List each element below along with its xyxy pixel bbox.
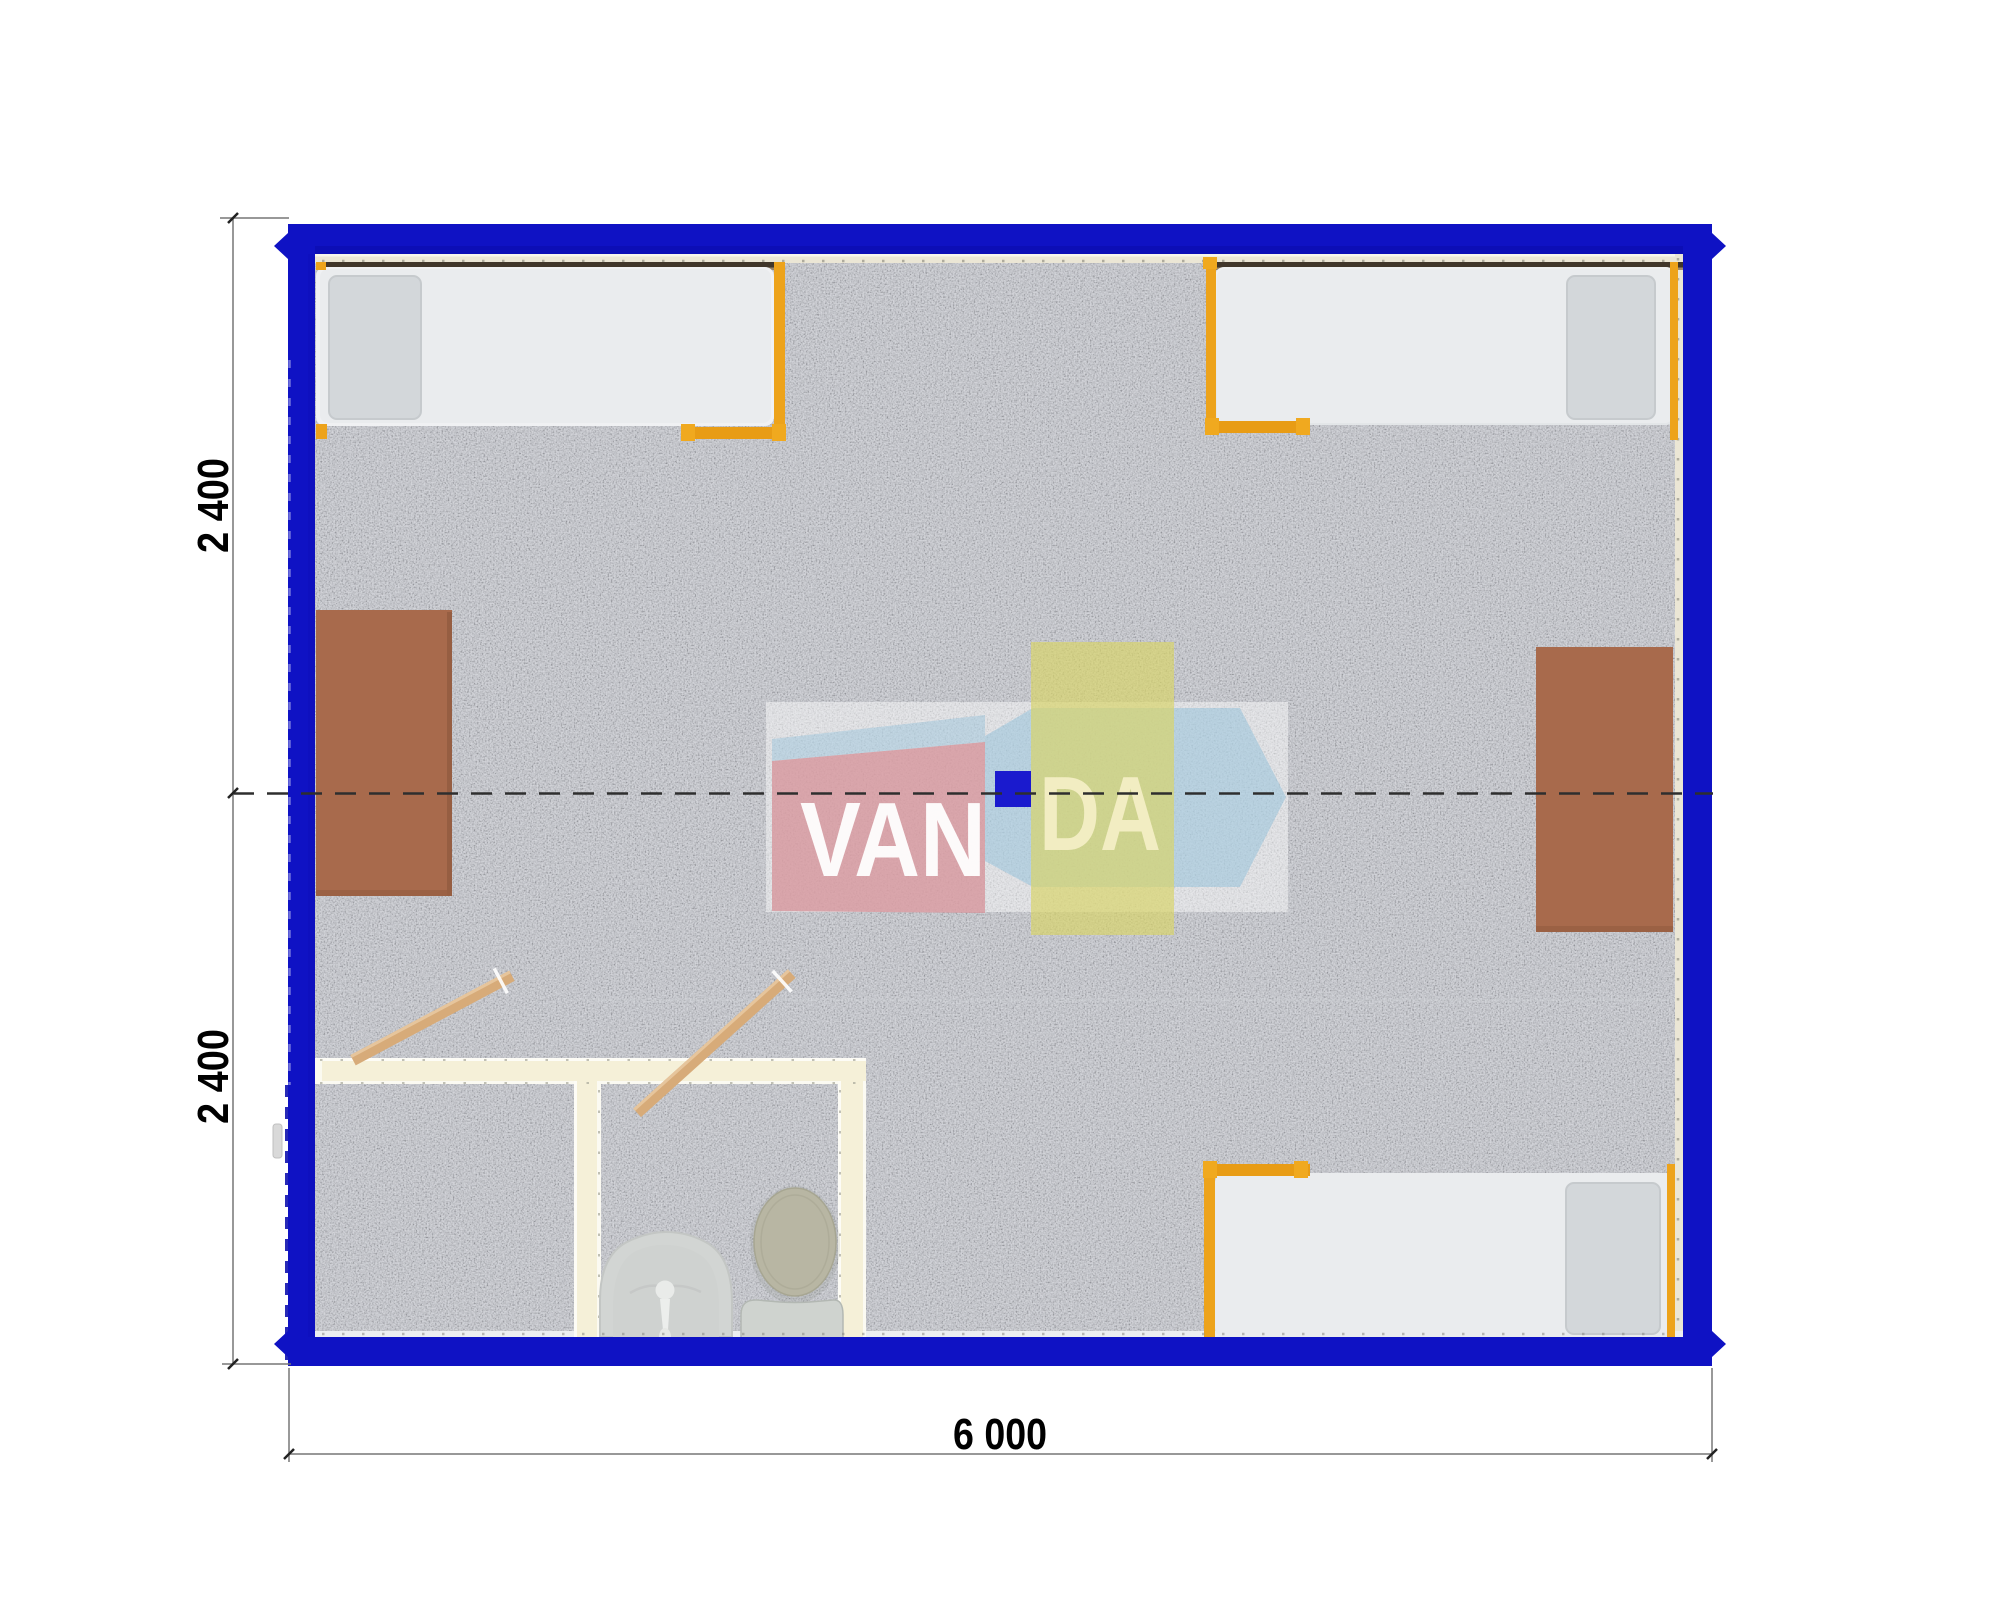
svg-text:2 400: 2 400 bbox=[189, 458, 238, 553]
svg-text:2 400: 2 400 bbox=[189, 1029, 238, 1124]
svg-text:VAN: VAN bbox=[800, 781, 986, 899]
svg-text:6 000: 6 000 bbox=[953, 1410, 1047, 1459]
svg-text:DA: DA bbox=[1039, 755, 1161, 873]
